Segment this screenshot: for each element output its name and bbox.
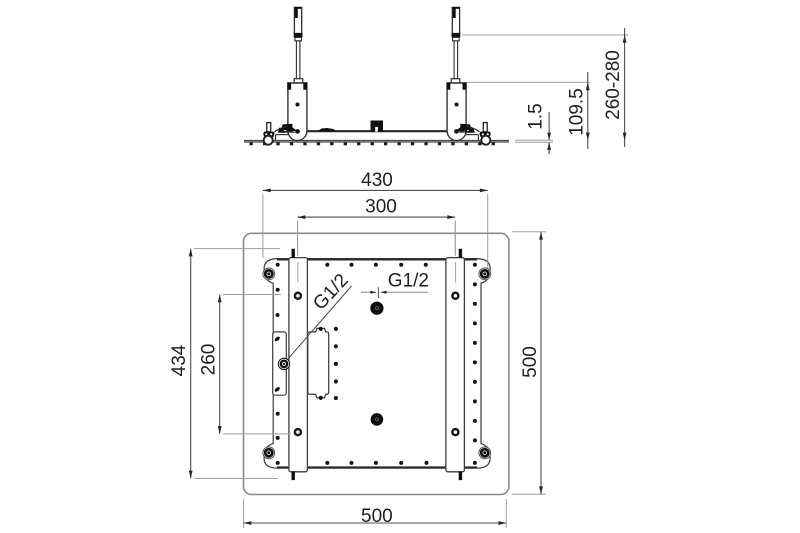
svg-text:434: 434: [169, 344, 190, 376]
svg-text:300: 300: [365, 196, 397, 217]
svg-text:430: 430: [361, 170, 393, 191]
svg-text:109.5: 109.5: [566, 88, 587, 136]
svg-text:G1/2: G1/2: [388, 271, 429, 292]
svg-text:500: 500: [361, 506, 393, 527]
svg-text:260: 260: [198, 344, 219, 376]
svg-text:1.5: 1.5: [526, 103, 547, 129]
svg-text:260-280: 260-280: [603, 50, 624, 120]
svg-text:500: 500: [520, 346, 541, 378]
